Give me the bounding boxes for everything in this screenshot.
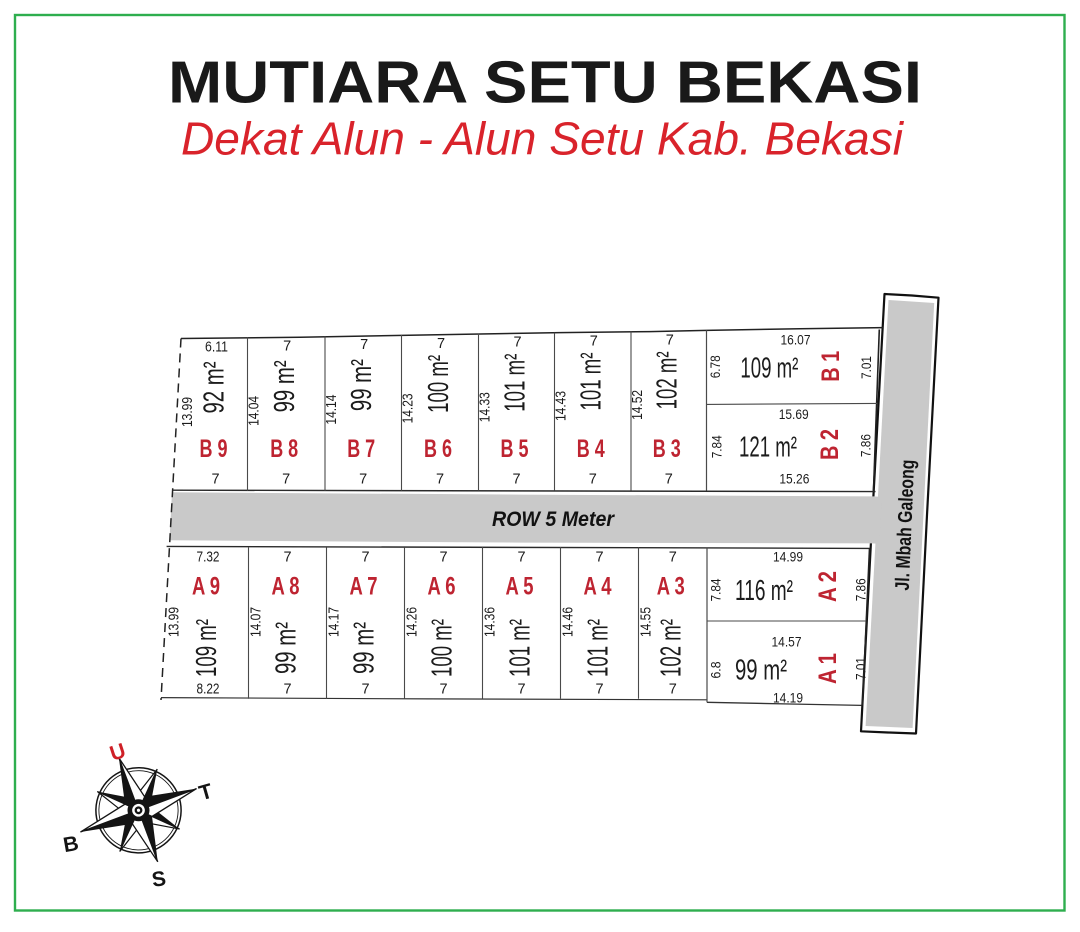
svg-text:7: 7 [513,335,521,351]
svg-text:99 m²: 99 m² [269,360,301,412]
svg-text:15.26: 15.26 [779,471,809,487]
svg-text:7: 7 [517,682,525,698]
svg-text:Dekat Alun - Alun Setu Kab. Be: Dekat Alun - Alun Setu Kab. Bekasi [181,113,905,165]
svg-text:15.69: 15.69 [779,406,809,422]
svg-text:101 m²: 101 m² [504,619,536,677]
svg-text:13.99: 13.99 [167,607,183,637]
svg-text:B 9: B 9 [200,435,228,463]
svg-text:14.36: 14.36 [483,607,499,637]
svg-text:7: 7 [439,550,447,566]
svg-text:121 m²: 121 m² [739,432,797,464]
svg-text:14.46: 14.46 [561,607,577,637]
svg-text:14.99: 14.99 [773,549,803,565]
svg-text:14.07: 14.07 [249,607,265,637]
svg-text:A 8: A 8 [272,572,300,600]
svg-text:A 6: A 6 [428,572,456,600]
svg-text:A 9: A 9 [192,572,220,600]
svg-text:A 7: A 7 [350,572,378,600]
svg-text:MUTIARA SETU BEKASI: MUTIARA SETU BEKASI [168,50,922,116]
svg-text:14.55: 14.55 [639,607,655,637]
svg-text:7: 7 [665,472,673,488]
svg-text:7: 7 [512,472,520,488]
svg-text:7.86: 7.86 [853,578,868,601]
svg-text:7.01: 7.01 [853,657,868,680]
svg-text:7: 7 [283,682,291,698]
svg-text:7: 7 [361,682,369,698]
svg-text:7: 7 [283,550,291,566]
svg-text:99 m²: 99 m² [346,359,378,411]
svg-text:99 m²: 99 m² [270,622,302,674]
svg-text:109 m²: 109 m² [740,353,798,385]
svg-text:14.43: 14.43 [554,391,570,421]
svg-text:7: 7 [669,682,677,698]
svg-text:A 1: A 1 [814,653,842,684]
svg-text:A 5: A 5 [506,572,534,600]
svg-text:100 m²: 100 m² [426,619,458,677]
svg-text:B: B [61,832,80,857]
svg-text:7: 7 [283,338,291,354]
svg-text:B 8: B 8 [270,435,298,463]
svg-text:7: 7 [439,682,447,698]
svg-text:101 m²: 101 m² [582,619,614,677]
svg-text:B 3: B 3 [653,435,681,463]
svg-text:14.23: 14.23 [401,393,417,423]
svg-text:8.22: 8.22 [197,682,220,698]
svg-text:7.32: 7.32 [197,550,220,566]
svg-text:99 m²: 99 m² [348,622,380,674]
svg-text:7: 7 [666,332,674,348]
svg-text:14.57: 14.57 [772,634,802,650]
svg-text:16.07: 16.07 [781,331,811,347]
svg-text:B 5: B 5 [501,435,529,463]
svg-text:7: 7 [517,550,525,566]
svg-text:B 2: B 2 [816,429,844,460]
svg-text:14.52: 14.52 [630,390,646,420]
svg-text:101 m²: 101 m² [499,353,531,411]
svg-text:A 3: A 3 [657,572,685,600]
svg-text:13.99: 13.99 [180,397,196,427]
svg-text:99 m²: 99 m² [735,655,787,687]
svg-text:7.01: 7.01 [859,356,874,379]
svg-text:7.84: 7.84 [708,578,723,601]
svg-text:14.19: 14.19 [773,690,803,706]
svg-text:101 m²: 101 m² [576,352,608,410]
svg-text:102 m²: 102 m² [652,351,684,409]
svg-text:U: U [107,739,129,766]
svg-text:7: 7 [361,550,369,566]
svg-text:14.33: 14.33 [478,392,494,422]
svg-text:7: 7 [595,550,603,566]
svg-text:A 4: A 4 [584,572,612,600]
svg-text:7: 7 [282,472,290,488]
svg-text:B 6: B 6 [424,435,452,463]
svg-text:14.14: 14.14 [324,395,340,425]
svg-text:100 m²: 100 m² [423,355,455,413]
svg-text:7: 7 [595,682,603,698]
svg-text:14.26: 14.26 [405,607,421,637]
svg-text:6.11: 6.11 [205,339,228,355]
svg-text:7.86: 7.86 [858,434,873,457]
svg-text:7: 7 [437,336,445,352]
svg-text:7: 7 [436,472,444,488]
svg-text:14.04: 14.04 [247,396,263,426]
svg-text:S: S [150,867,167,892]
svg-text:7: 7 [360,337,368,353]
svg-text:B 4: B 4 [577,435,605,463]
svg-text:102 m²: 102 m² [656,619,688,677]
svg-text:6.8: 6.8 [708,662,723,679]
svg-text:T: T [197,780,216,806]
svg-text:109 m²: 109 m² [191,619,223,677]
svg-text:B 1: B 1 [817,351,845,382]
svg-text:92 m²: 92 m² [198,361,230,413]
svg-text:B 7: B 7 [347,435,375,463]
svg-text:7: 7 [590,334,598,350]
svg-text:ROW 5 Meter: ROW 5 Meter [492,508,616,531]
svg-text:7: 7 [211,472,219,488]
svg-text:A 2: A 2 [814,571,842,602]
svg-text:6.78: 6.78 [708,355,723,378]
svg-text:7: 7 [669,550,677,566]
svg-text:7: 7 [589,472,597,488]
svg-text:14.17: 14.17 [327,607,343,637]
svg-text:7: 7 [359,472,367,488]
svg-text:7.84: 7.84 [710,435,725,458]
svg-text:116 m²: 116 m² [735,575,793,607]
